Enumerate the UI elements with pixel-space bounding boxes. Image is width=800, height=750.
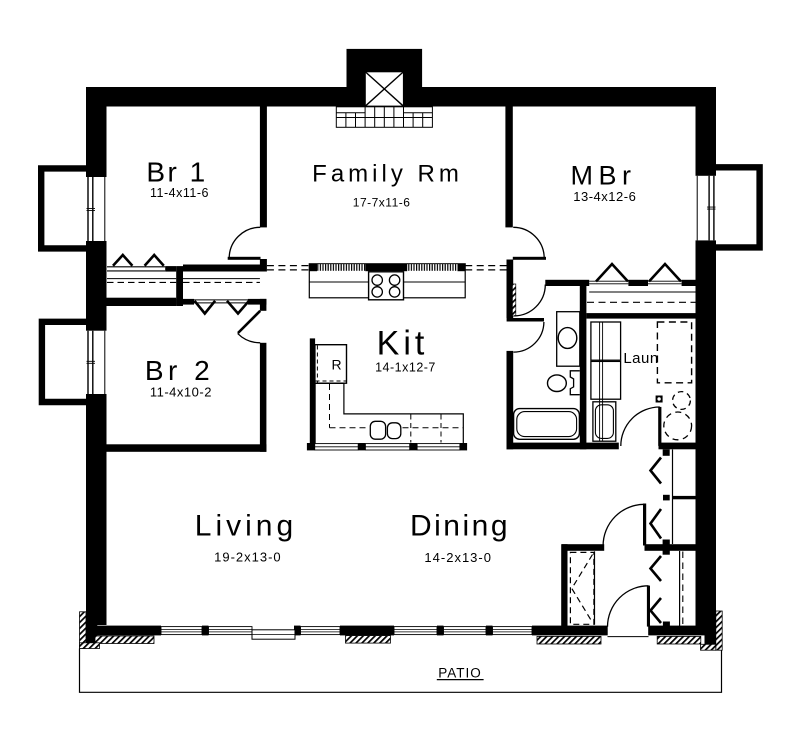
- svg-text:19-2x13-0: 19-2x13-0: [214, 549, 282, 564]
- svg-text:13-4x12-6: 13-4x12-6: [573, 189, 636, 204]
- svg-text:Br 2: Br 2: [145, 355, 214, 386]
- svg-text:Family Rm: Family Rm: [312, 160, 463, 187]
- svg-text:R: R: [331, 357, 341, 373]
- svg-text:Kit: Kit: [377, 325, 429, 363]
- svg-text:11-4x10-2: 11-4x10-2: [150, 384, 212, 399]
- svg-text:14-1x12-7: 14-1x12-7: [375, 360, 436, 374]
- svg-text:Dining: Dining: [410, 510, 510, 543]
- svg-text:Living: Living: [195, 509, 297, 542]
- svg-text:Br 1: Br 1: [146, 157, 207, 188]
- svg-text:Laun: Laun: [623, 350, 658, 367]
- svg-text:11-4x11-6: 11-4x11-6: [150, 186, 209, 200]
- svg-text:MBr: MBr: [571, 160, 637, 190]
- svg-text:PATIO: PATIO: [438, 666, 482, 681]
- svg-text:14-2x13-0: 14-2x13-0: [424, 550, 492, 565]
- svg-text:17-7x11-6: 17-7x11-6: [353, 196, 411, 210]
